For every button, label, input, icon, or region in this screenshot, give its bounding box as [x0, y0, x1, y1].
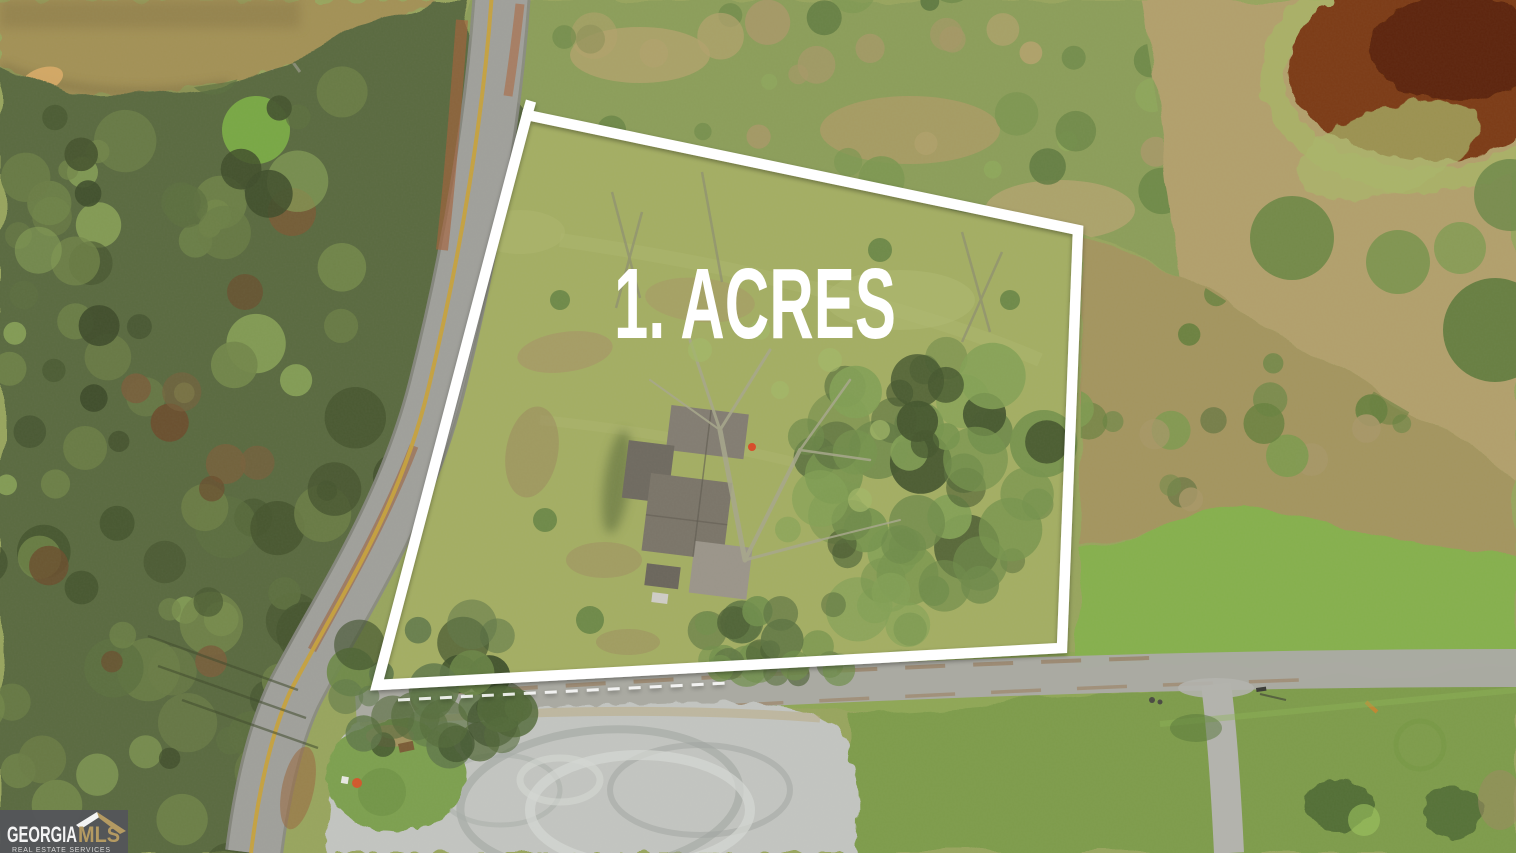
watermark-logo: GEORGIA MLS REAL ESTATE SERVICES [0, 810, 128, 853]
aerial-photo: 1. ACRES GEORGIA MLS REAL ESTATE SERVICE… [0, 0, 1516, 853]
logo-tagline: REAL ESTATE SERVICES [12, 847, 110, 853]
logo-brand-primary: GEORGIA [7, 822, 77, 847]
aerial-scene: 1. ACRES GEORGIA MLS REAL ESTATE SERVICE… [0, 0, 1516, 853]
acreage-text: 1. ACRES [614, 248, 896, 360]
film-grain [0, 0, 1516, 853]
logo-brand-secondary: MLS [78, 822, 120, 847]
